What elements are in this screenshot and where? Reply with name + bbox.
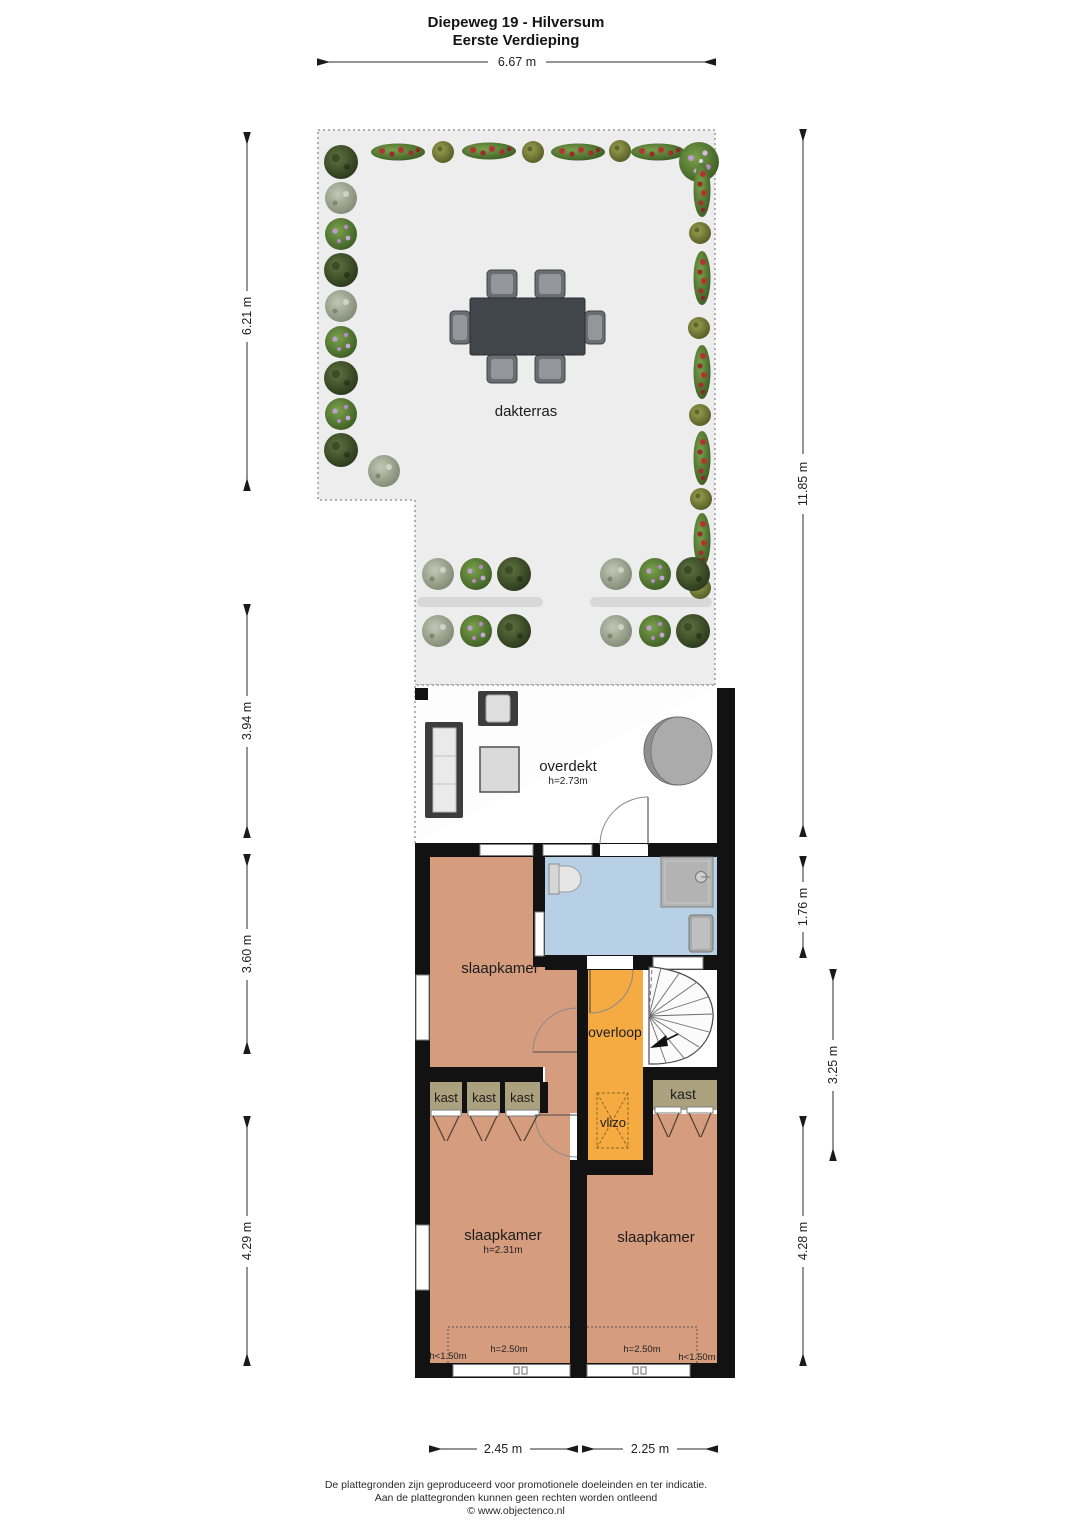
plant-icon (609, 140, 631, 162)
plant-icon (324, 361, 358, 395)
door-opening (535, 912, 544, 956)
room-label-kast1: kast (434, 1090, 458, 1105)
plant-icon (432, 141, 454, 163)
plant-icon (324, 433, 358, 467)
window (480, 845, 533, 856)
closet-opening (468, 1110, 499, 1116)
plant-icon (460, 558, 492, 590)
plant-icon (600, 615, 632, 647)
room-label-slaapkamer-left: slaapkamer (464, 1227, 542, 1244)
dim-label-left-2: 3.94 m (240, 702, 254, 740)
dim-label-bottom-1: 2.45 m (484, 1442, 522, 1456)
window (587, 1365, 690, 1377)
plant-icon (694, 345, 711, 399)
room-height-overdekt: h=2.73m (548, 776, 587, 787)
plant-icon (324, 145, 358, 179)
floorplan-page: dakterras overdekt h=2.73m slaapkamer ov… (0, 0, 1080, 1528)
room-label-slaapkamer-mid: slaapkamer (461, 960, 539, 977)
dim-label-left-4: 4.29 m (240, 1222, 254, 1260)
height-zone-label: h=2.50m (490, 1344, 527, 1355)
plant-icon (324, 253, 358, 287)
plant-icon (600, 558, 632, 590)
dim-label-top: 6.67 m (498, 55, 536, 69)
side-table (480, 747, 519, 792)
plant-icon (694, 163, 711, 217)
room-label-slaapkamer-right: slaapkamer (617, 1229, 695, 1246)
closet-opening (655, 1107, 681, 1113)
plant-icon (694, 431, 711, 485)
plan-subtitle: Eerste Verdieping (453, 32, 580, 49)
planter-strip (590, 597, 712, 607)
plant-icon (688, 317, 710, 339)
footer-disclaimer-line2: Aan de plattegronden kunnen geen rechten… (375, 1492, 658, 1504)
armchair (478, 691, 518, 726)
plant-icon (551, 144, 605, 161)
window (416, 975, 429, 1040)
height-zone-label: h<1.50m (429, 1351, 466, 1362)
sofa (425, 722, 463, 818)
plant-icon (462, 143, 516, 160)
room-label-dakterras: dakterras (495, 403, 558, 420)
plant-icon (325, 290, 357, 322)
room-label-vlizo: vlizo (600, 1115, 626, 1130)
room-label-kast-right: kast (670, 1086, 696, 1102)
plant-icon (460, 615, 492, 647)
door-swing (600, 797, 648, 845)
plant-icon (676, 614, 710, 648)
closet-opening (431, 1110, 461, 1116)
plant-icon (422, 558, 454, 590)
plant-icon (689, 404, 711, 426)
footer-copyright: © www.objectenco.nl (467, 1505, 565, 1517)
height-zone-label: h=2.50m (623, 1344, 660, 1355)
dining-table (470, 298, 585, 355)
dim-label-right-3: 3.25 m (826, 1046, 840, 1084)
plant-icon (422, 615, 454, 647)
plant-icon (522, 141, 544, 163)
plant-icon (497, 557, 531, 591)
room-label-kast2: kast (472, 1090, 496, 1105)
plant-icon (689, 222, 711, 244)
room-label-overloop: overloop (588, 1024, 642, 1040)
landing-floor (588, 970, 643, 1160)
room-height-slaapkamer-left: h=2.31m (483, 1245, 522, 1256)
dim-label-right-4: 4.28 m (796, 1222, 810, 1260)
plant-icon (690, 488, 712, 510)
dim-label-left-1: 6.21 m (240, 297, 254, 335)
dim-label-left-3: 3.60 m (240, 935, 254, 973)
closet-opening (687, 1107, 713, 1113)
dim-label-bottom-2: 2.25 m (631, 1442, 669, 1456)
dim-label-right-2: 1.76 m (796, 888, 810, 926)
plant-icon (325, 182, 357, 214)
plant-icon (368, 455, 400, 487)
window (543, 845, 592, 856)
plant-icon (371, 144, 425, 161)
planter-strip (417, 597, 543, 607)
floorplan-drawing: dakterras overdekt h=2.73m slaapkamer ov… (0, 0, 1080, 1528)
room-label-kast3: kast (510, 1090, 534, 1105)
washbasin (689, 915, 713, 952)
round-chair (644, 717, 712, 785)
interior-window (653, 957, 703, 969)
plant-icon (325, 218, 357, 250)
plant-icon (325, 398, 357, 430)
plant-icon (639, 615, 671, 647)
footer-disclaimer-line1: De plattegronden zijn geproduceerd voor … (325, 1479, 707, 1491)
plant-icon (676, 557, 710, 591)
plant-icon (325, 326, 357, 358)
plant-icon (694, 251, 711, 305)
plant-icon (631, 144, 685, 161)
shower (661, 857, 713, 907)
plant-icon (639, 558, 671, 590)
room-label-overdekt: overdekt (539, 758, 597, 775)
window (416, 1225, 429, 1290)
window (453, 1365, 570, 1377)
closet-opening (506, 1110, 539, 1116)
plan-title: Diepeweg 19 - Hilversum (428, 14, 605, 31)
door-opening (587, 956, 633, 969)
dim-label-right-1: 11.85 m (796, 462, 810, 506)
door-opening (600, 844, 648, 856)
plant-icon (497, 614, 531, 648)
height-zone-label: h<1.50m (678, 1352, 715, 1363)
